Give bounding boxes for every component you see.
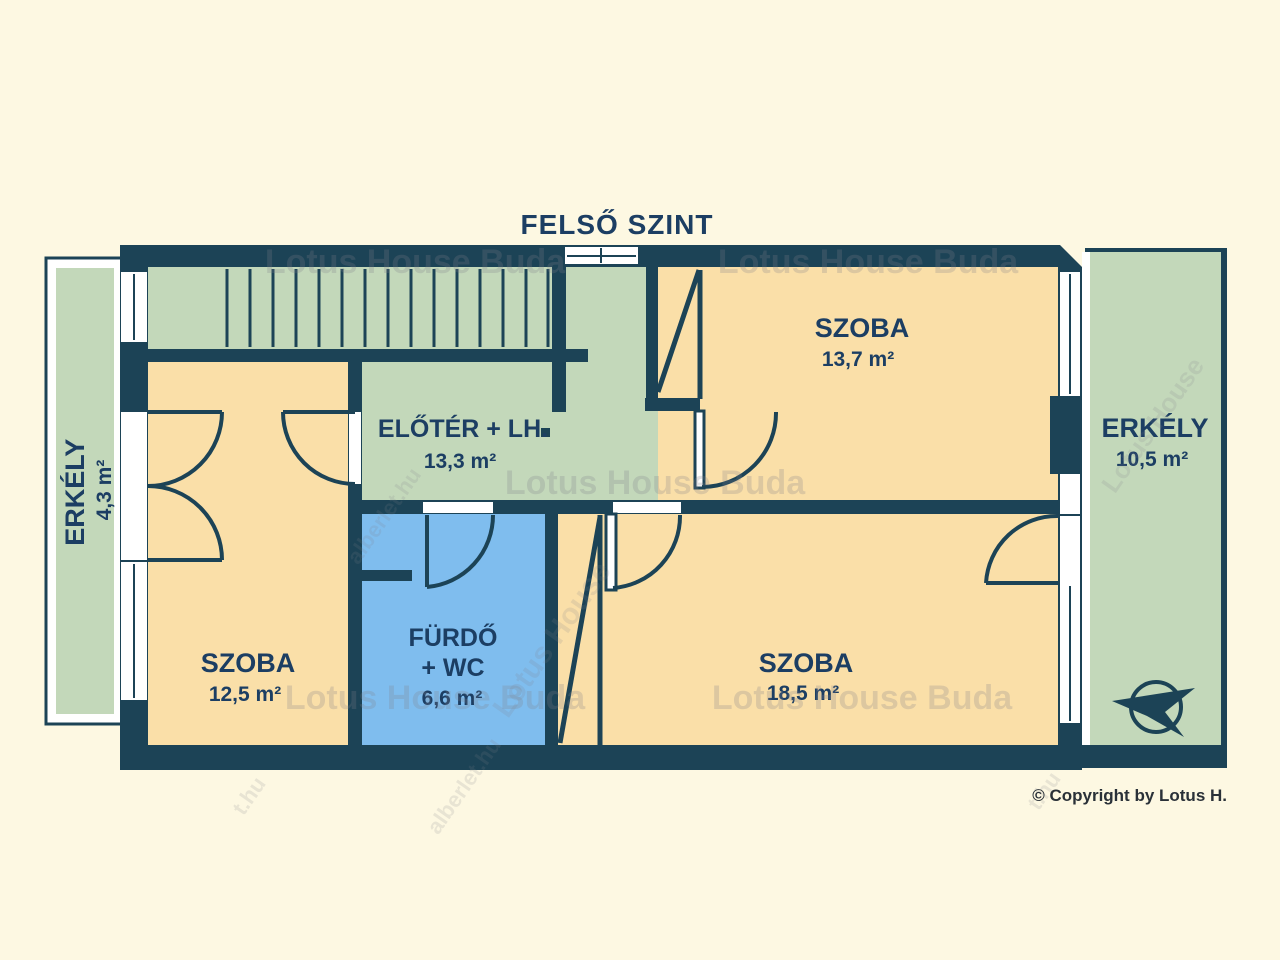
- page-title: FELSŐ SZINT: [521, 209, 714, 240]
- window-right-small: [1060, 474, 1080, 514]
- watermark: Lotus House Buda: [505, 464, 806, 502]
- window-top: [565, 247, 638, 264]
- label-hall-name: ELŐTÉR + LH.: [378, 414, 548, 443]
- copyright-text: © Copyright by Lotus H.: [1032, 786, 1227, 805]
- watermark: Lotus House Buda: [265, 243, 566, 281]
- window-left-bedroom: [121, 562, 147, 700]
- window-right-bedroom-top: [1060, 272, 1080, 396]
- label-bathroom-name1: FÜRDŐ: [409, 623, 498, 652]
- label-bedroom-left-area: 12,5 m²: [209, 683, 281, 706]
- floor-plan: FELSŐ SZINT: [0, 0, 1280, 960]
- label-bedroom-bottom-name: SZOBA: [759, 648, 854, 678]
- watermark: Lotus House Buda: [712, 679, 1013, 717]
- window-right-bedroom-bottom: [1060, 584, 1080, 723]
- label-bedroom-top-area: 13,7 m²: [822, 348, 894, 371]
- label-hall-area: 13,3 m²: [424, 450, 496, 473]
- label-bedroom-left-name: SZOBA: [201, 648, 296, 678]
- window-left-stairwell: [121, 272, 147, 342]
- watermark: Lotus House Buda: [285, 679, 586, 717]
- label-bedroom-top-name: SZOBA: [815, 313, 910, 343]
- room-balcony-right: [1082, 248, 1227, 768]
- shower-partition: [362, 570, 412, 581]
- watermark: Lotus House Buda: [718, 243, 1019, 281]
- label-bathroom-name2: + WC: [421, 654, 484, 682]
